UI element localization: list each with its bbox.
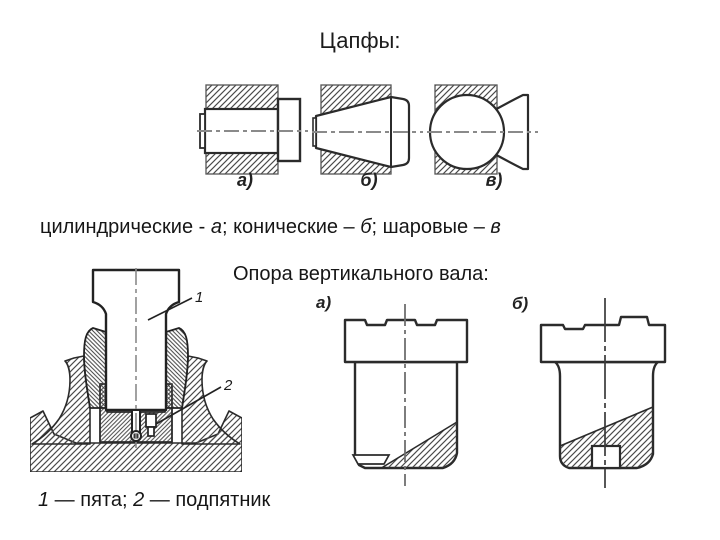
legend-text-1: — пята;: [49, 489, 133, 511]
bottom-recess-notch: [592, 446, 620, 468]
thrust-support-figure-a: [338, 296, 474, 492]
bushing-flange: [345, 320, 467, 362]
caption-segment: ; конические –: [222, 216, 360, 238]
support-caption: Опора вертикального вала:: [233, 263, 489, 286]
vertical-shaft-support-drawing: 1 2: [30, 268, 242, 472]
retainer-detail-lower: [148, 427, 154, 436]
slide-title: Цапфы:: [0, 28, 720, 54]
callout-1-label: 1: [195, 289, 203, 306]
caption-variant-v: в: [490, 216, 500, 238]
slide: Цапфы: а) б) в) цилиндрические - а; кони…: [0, 0, 720, 540]
cylindrical-journal-figure: [197, 82, 309, 182]
bearing-sleeve-left: [84, 328, 106, 408]
journal-types-caption: цилиндрические - а; конические – б; шаро…: [40, 216, 501, 239]
bushing-flange: [541, 317, 665, 362]
figure-label-a: а): [230, 170, 260, 191]
legend-number-2: 2: [133, 489, 144, 511]
figure-label-v: в): [479, 170, 509, 191]
legend-caption: 1 — пята; 2 — подпятник: [38, 489, 270, 512]
caption-segment: цилиндрические -: [40, 216, 211, 238]
figure-label-b: б): [354, 170, 384, 191]
retainer-detail: [146, 414, 156, 427]
foot-recess-detail: [353, 455, 389, 464]
caption-variant-b: б: [360, 216, 371, 238]
cylindrical-shaft: [205, 109, 278, 153]
legend-number-1: 1: [38, 489, 49, 511]
bearing-sleeve-right: [166, 328, 188, 408]
thrust-support-figure-b: [533, 296, 673, 492]
spherical-journal-figure: [427, 82, 539, 182]
bottom-figure-label-b: б): [512, 294, 528, 314]
legend-text-2: — подпятник: [144, 489, 270, 511]
caption-variant-a: а: [211, 216, 222, 238]
caption-segment: ; шаровые –: [371, 216, 490, 238]
bottom-figure-label-a: а): [316, 293, 331, 313]
callout-2-label: 2: [223, 377, 233, 394]
conical-journal-figure: [312, 82, 424, 182]
